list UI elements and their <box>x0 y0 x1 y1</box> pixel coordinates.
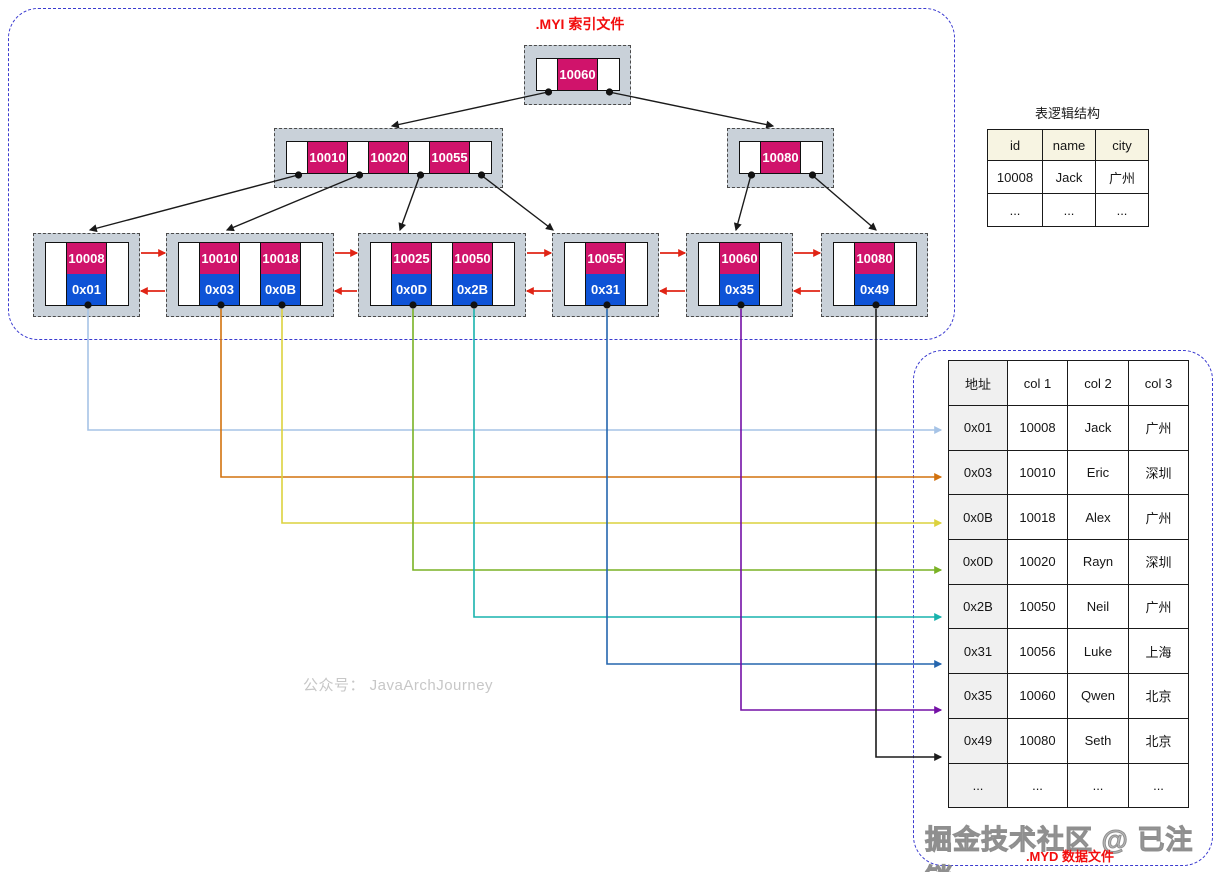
leaf-key-cell: 10008 <box>67 243 106 274</box>
table-row: 0x3110056Luke上海 <box>949 629 1189 674</box>
table-cell: Rayn <box>1068 540 1129 585</box>
leaf-entry: 100180x0B <box>260 243 301 305</box>
logical-table: idnamecity10008Jack广州......... <box>987 129 1149 227</box>
leaf-key-cell: 10018 <box>261 243 300 274</box>
table-cell: 广州 <box>1129 584 1189 629</box>
table-row: 10008Jack广州 <box>988 161 1149 194</box>
table-cell: 0x0B <box>949 495 1008 540</box>
leaf-addr-cell: 0x03 <box>200 274 239 305</box>
index-key-cell: 10055 <box>429 142 470 173</box>
table-row: ............ <box>949 763 1189 808</box>
myd-file-label: .MYD 数据文件 <box>1000 846 1140 865</box>
address-connector <box>741 309 941 710</box>
leaf-addr-cell: 0x01 <box>67 274 106 305</box>
logical-table-title: 表逻辑结构 <box>987 103 1148 122</box>
leaf-slot-box: 100800x49 <box>833 242 917 306</box>
table-cell: Alex <box>1068 495 1129 540</box>
table-cell: Eric <box>1068 450 1129 495</box>
btree-internal-node: 10080 <box>727 128 834 188</box>
table-cell: ... <box>1043 194 1096 227</box>
child-pointer-cell <box>287 142 307 173</box>
table-cell: 10050 <box>1008 584 1068 629</box>
table-header-row: idnamecity <box>988 130 1149 161</box>
table-cell: 广州 <box>1129 495 1189 540</box>
node-slot-box: 10060 <box>536 58 620 91</box>
leaf-addr-cell: 0x0B <box>261 274 300 305</box>
table-cell: ... <box>1129 763 1189 808</box>
table-cell: Luke <box>1068 629 1129 674</box>
table-cell: Jack <box>1043 161 1096 194</box>
table-cell: 10020 <box>1008 540 1068 585</box>
child-pointer-cell <box>348 142 368 173</box>
leaf-key-cell: 10010 <box>200 243 239 274</box>
data-table: 地址col 1col 2col 30x0110008Jack广州0x031001… <box>948 360 1189 808</box>
table-cell: 广州 <box>1129 406 1189 451</box>
diagram-canvas: .MYI 索引文件 表逻辑结构 idnamecity10008Jack广州...… <box>0 0 1219 872</box>
btree-leaf-node: 100250x0D100500x2B <box>358 233 526 317</box>
leaf-entry: 100550x31 <box>585 243 626 305</box>
table-cell: 0x31 <box>949 629 1008 674</box>
table-row: 0x4910080Seth北京 <box>949 718 1189 763</box>
table-row: 0x3510060Qwen北京 <box>949 674 1189 719</box>
center-watermark: 公众号： JavaArchJourney <box>303 674 493 695</box>
column-header: col 1 <box>1008 361 1068 406</box>
table-cell: 10080 <box>1008 718 1068 763</box>
table-cell: 北京 <box>1129 718 1189 763</box>
table-cell: Seth <box>1068 718 1129 763</box>
logical-structure-table: idnamecity10008Jack广州......... <box>987 129 1149 227</box>
leaf-addr-cell: 0x2B <box>453 274 492 305</box>
table-row: 0x0110008Jack广州 <box>949 406 1189 451</box>
table-cell: 0x2B <box>949 584 1008 629</box>
column-header: col 3 <box>1129 361 1189 406</box>
node-slot-box: 10080 <box>739 141 823 174</box>
leaf-pointer-cell <box>107 243 127 305</box>
table-cell: ... <box>1008 763 1068 808</box>
table-cell: 10056 <box>1008 629 1068 674</box>
table-cell: 10018 <box>1008 495 1068 540</box>
leaf-key-cell: 10080 <box>855 243 894 274</box>
table-cell: Jack <box>1068 406 1129 451</box>
address-connector <box>282 309 941 523</box>
leaf-addr-cell: 0x31 <box>586 274 625 305</box>
table-cell: 广州 <box>1096 161 1149 194</box>
leaf-slot-box: 100100x03100180x0B <box>178 242 323 306</box>
table-row: 0x0D10020Rayn深圳 <box>949 540 1189 585</box>
table-header-row: 地址col 1col 2col 3 <box>949 361 1189 406</box>
table-cell: 0x49 <box>949 718 1008 763</box>
leaf-pointer-cell <box>493 243 513 305</box>
leaf-entry: 100500x2B <box>452 243 493 305</box>
leaf-key-cell: 10025 <box>392 243 431 274</box>
leaf-pointer-cell <box>834 243 854 305</box>
leaf-pointer-cell <box>46 243 66 305</box>
leaf-key-cell: 10050 <box>453 243 492 274</box>
table-row: 0x2B10050Neil广州 <box>949 584 1189 629</box>
table-cell: 0x35 <box>949 674 1008 719</box>
leaf-key-cell: 10060 <box>720 243 759 274</box>
leaf-pointer-cell <box>760 243 780 305</box>
index-key-cell: 10060 <box>557 59 598 90</box>
table-row: 0x0310010Eric深圳 <box>949 450 1189 495</box>
leaf-slot-box: 100600x35 <box>698 242 782 306</box>
column-header: col 2 <box>1068 361 1129 406</box>
leaf-pointer-cell <box>895 243 915 305</box>
leaf-addr-cell: 0x0D <box>392 274 431 305</box>
table-cell: 北京 <box>1129 674 1189 719</box>
btree-leaf-node: 100550x31 <box>552 233 659 317</box>
child-pointer-cell <box>801 142 821 173</box>
table-cell: 上海 <box>1129 629 1189 674</box>
leaf-pointer-cell <box>699 243 719 305</box>
index-key-cell: 10080 <box>760 142 801 173</box>
address-connector <box>413 309 941 570</box>
leaf-slot-box: 100550x31 <box>564 242 648 306</box>
btree-leaf-node: 100080x01 <box>33 233 140 317</box>
child-pointer-cell <box>598 59 618 90</box>
leaf-key-cell: 10055 <box>586 243 625 274</box>
address-connector <box>474 309 941 617</box>
leaf-pointer-cell <box>179 243 199 305</box>
table-cell: Neil <box>1068 584 1129 629</box>
node-slot-box: 100101002010055 <box>286 141 492 174</box>
leaf-pointer-cell <box>565 243 585 305</box>
btree-leaf-node: 100100x03100180x0B <box>166 233 334 317</box>
btree-leaf-node: 100800x49 <box>821 233 928 317</box>
table-cell: 0x0D <box>949 540 1008 585</box>
leaf-entry: 100800x49 <box>854 243 895 305</box>
leaf-addr-cell: 0x35 <box>720 274 759 305</box>
table-cell: 0x03 <box>949 450 1008 495</box>
leaf-slot-box: 100250x0D100500x2B <box>370 242 515 306</box>
table-cell: ... <box>949 763 1008 808</box>
myi-file-label: .MYI 索引文件 <box>505 14 655 34</box>
leaf-entry: 100080x01 <box>66 243 107 305</box>
table-cell: 10060 <box>1008 674 1068 719</box>
column-header: city <box>1096 130 1149 161</box>
table-cell: ... <box>988 194 1043 227</box>
leaf-addr-cell: 0x49 <box>855 274 894 305</box>
btree-leaf-node: 100600x35 <box>686 233 793 317</box>
btree-root-node: 10060 <box>524 45 631 105</box>
table-row: ......... <box>988 194 1149 227</box>
table-cell: ... <box>1068 763 1129 808</box>
myd-data-table: 地址col 1col 2col 30x0110008Jack广州0x031001… <box>948 360 1189 808</box>
child-pointer-cell <box>740 142 760 173</box>
table-cell: 0x01 <box>949 406 1008 451</box>
leaf-pointer-cell <box>432 243 452 305</box>
leaf-entry: 100600x35 <box>719 243 760 305</box>
column-header: id <box>988 130 1043 161</box>
child-pointer-cell <box>537 59 557 90</box>
column-header: 地址 <box>949 361 1008 406</box>
leaf-pointer-cell <box>301 243 321 305</box>
table-cell: 深圳 <box>1129 450 1189 495</box>
leaf-pointer-cell <box>240 243 260 305</box>
leaf-pointer-cell <box>626 243 646 305</box>
table-cell: 10010 <box>1008 450 1068 495</box>
leaf-pointer-cell <box>371 243 391 305</box>
btree-internal-node: 100101002010055 <box>274 128 503 188</box>
leaf-entry: 100250x0D <box>391 243 432 305</box>
table-cell: Qwen <box>1068 674 1129 719</box>
leaf-entry: 100100x03 <box>199 243 240 305</box>
index-key-cell: 10010 <box>307 142 348 173</box>
table-cell: 10008 <box>988 161 1043 194</box>
index-key-cell: 10020 <box>368 142 409 173</box>
table-cell: 深圳 <box>1129 540 1189 585</box>
table-cell: 10008 <box>1008 406 1068 451</box>
child-pointer-cell <box>470 142 490 173</box>
address-connector <box>607 309 941 664</box>
child-pointer-cell <box>409 142 429 173</box>
table-cell: ... <box>1096 194 1149 227</box>
column-header: name <box>1043 130 1096 161</box>
table-row: 0x0B10018Alex广州 <box>949 495 1189 540</box>
leaf-slot-box: 100080x01 <box>45 242 129 306</box>
